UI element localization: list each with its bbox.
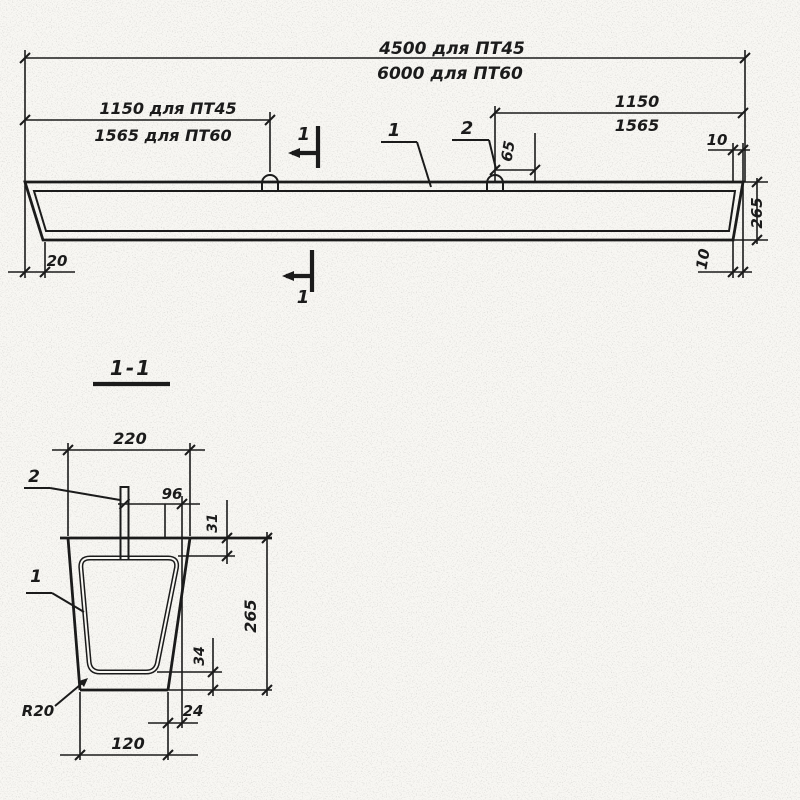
dim-top-width-label: 220 [113,429,146,448]
radius-label: R20 [22,702,54,720]
section-mark-lower-label: 1 [297,287,310,308]
dim-bottom-width-label: 120 [111,734,144,753]
section-title-label: 1-1 [110,356,152,380]
dim-bottom-cover-label: 34 [192,646,208,665]
dim-section-height-label: 265 [241,599,260,632]
drawing-sheet: 4500 для ПТ45 6000 для ПТ60 1150 для ПТ4… [0,0,800,800]
callout-loop-section-label: 2 [28,467,40,487]
dim-loop-right-line1-label: 1150 [615,92,660,111]
section-mark-upper-label: 1 [297,124,310,145]
technical-drawing: 4500 для ПТ45 6000 для ПТ60 1150 для ПТ4… [0,0,800,800]
dim-bar-offset-label: 96 [162,485,183,503]
dim-corner-offset-label: 24 [183,702,204,720]
dim-loop-left-line2-label: 1565 для ПТ60 [94,126,231,145]
dim-length-pt60-label: 6000 для ПТ60 [377,64,523,84]
dim-beam-height-label: 265 [748,197,766,228]
dim-loop-left-line1-label: 1150 для ПТ45 [99,99,236,118]
dim-end-left-label: 20 [47,252,68,270]
callout-loop-elevation-label: 2 [461,118,474,139]
dim-loop-right-line2-label: 1565 [615,116,660,135]
dim-length-pt45-label: 4500 для ПТ45 [378,39,525,59]
dim-end-bottom-label: 10 [692,247,713,271]
dim-loop-offset-label: 65 [497,139,518,163]
dim-top-cover-label: 31 [205,513,221,532]
dim-end-top-label: 10 [707,131,728,149]
callout-frame-elevation-label: 1 [388,120,401,141]
callout-frame-section-label: 1 [30,567,42,587]
